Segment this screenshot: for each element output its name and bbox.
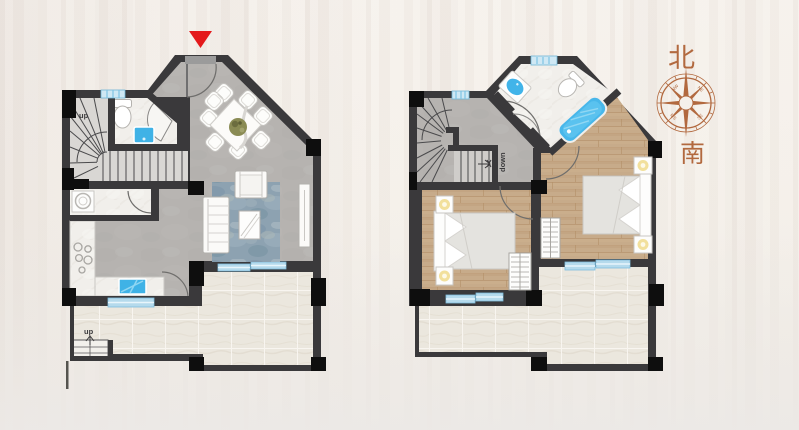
svg-text:up: up [84,327,94,336]
svg-text:down: down [498,152,507,172]
svg-text:up: up [79,111,89,120]
svg-text:NW: NW [671,83,680,92]
